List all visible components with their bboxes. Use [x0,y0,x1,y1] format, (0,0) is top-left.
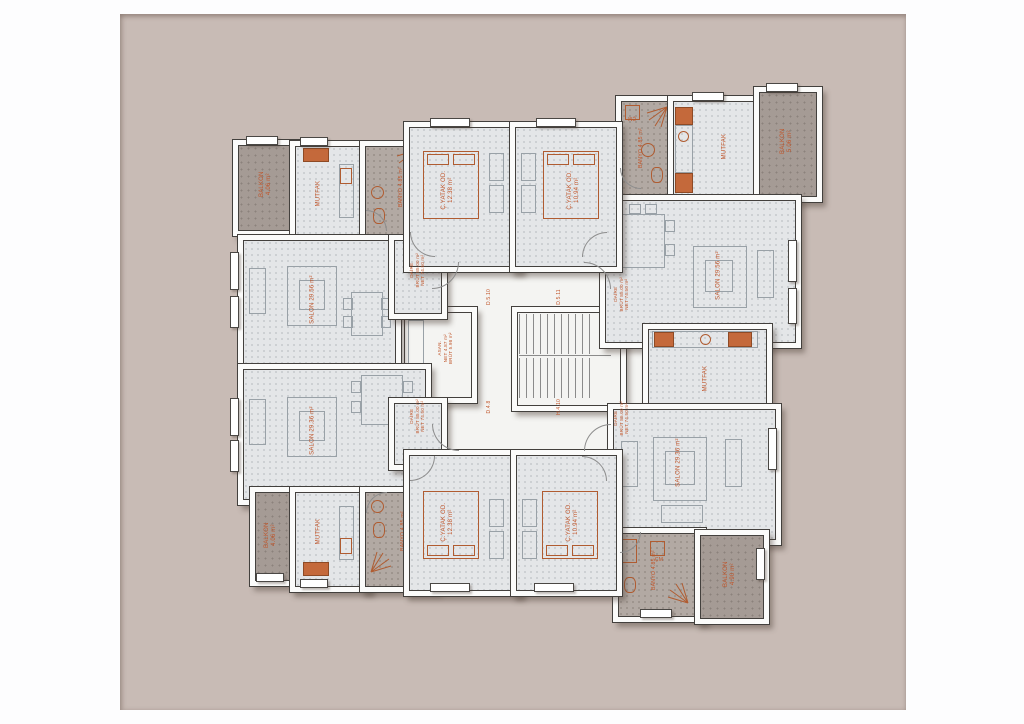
page-background: ASAN. NET 4.87 m² BRÜT 5.98 m² BALKON 4.… [0,0,1024,724]
wardrobe [522,531,537,559]
washing-machine-icon [625,105,640,120]
room-salon-bottom-right: SALON 29.36 m² [608,404,781,545]
kitchen-label: MUTFAK [315,512,322,552]
window [788,240,797,282]
sofa [725,439,742,487]
fridge-icon [675,173,693,193]
toilet-icon [651,167,663,183]
chair [351,401,361,413]
washing-machine-icon [650,541,665,556]
wardrobe [521,153,536,181]
balcony-label: BALKON 5.06 m² [780,121,794,161]
room-kitchen-top-right: MUTFAK [668,96,766,207]
pillow [572,545,594,556]
sofa [757,250,774,298]
coffee-table [299,280,325,310]
pillow [546,545,568,556]
tv-unit [661,505,703,523]
room-salon-top-left: SALON 29.56 m² [238,235,401,375]
sofa [249,268,266,314]
wardrobe [521,185,536,213]
chair [343,316,353,328]
wm-label: ÇM [652,557,666,563]
balcony-label: BALKON 4.90 m² [723,554,737,594]
wardrobe [489,153,504,181]
pillow [573,154,595,165]
window [536,118,576,127]
wardrobe [522,499,537,527]
stair-divider [519,355,611,356]
chair [645,204,657,214]
balcony-label: BALKON 4.06 m² [259,164,273,204]
wardrobe [489,499,504,527]
wardrobe [489,185,504,213]
wardrobe [489,531,504,559]
window [640,609,672,618]
sofa [249,399,266,445]
stove-icon [728,332,752,347]
toilet-icon [624,577,636,593]
window [256,573,284,582]
sink-icon [678,131,689,142]
pillow [427,545,449,556]
coffee-table [299,411,325,441]
window [756,548,765,580]
sink-icon [340,538,352,554]
dining-table [619,214,665,268]
window [430,583,470,592]
chair [629,204,641,214]
window [766,83,798,92]
basin-icon [641,143,655,157]
dining-table [351,292,383,336]
chair [403,381,413,393]
stair-flight-upper [519,314,595,354]
window [430,118,470,127]
window [788,288,797,324]
basin-icon [371,186,384,199]
sink-icon [700,334,711,345]
window [230,398,239,436]
elevator-label: ASAN. NET 4.87 m² BRÜT 5.98 m² [437,325,454,371]
chair [665,220,675,232]
coffee-table [705,260,733,292]
stove-icon [675,107,693,125]
window [692,92,724,101]
window [300,137,328,146]
kitchen-label: MUTFAK [315,174,322,214]
chair [665,244,675,256]
coffee-table [665,451,695,485]
kitchen-label: MUTFAK [721,127,728,167]
room-kitchen-top-left: MUTFAK [290,141,371,246]
kitchen-label: MUTFAK [702,359,709,399]
toilet-icon [373,522,385,538]
room-kitchen-bottom-left: MUTFAK [290,487,371,592]
window [230,296,239,328]
stove-icon [303,148,329,162]
room-balcony-top-right: BALKON 5.06 m² [754,87,822,202]
shower-spray-icon [645,105,669,129]
balcony-label: BALKON 4.06 m² [264,515,278,555]
sofa [621,441,638,487]
window [768,428,777,470]
sink-icon [340,168,352,184]
shower-spray-icon [369,550,393,574]
stove-icon [303,562,329,576]
window [230,440,239,472]
fridge-icon [654,332,674,347]
chair [351,381,361,393]
stair-flight-lower [519,358,595,398]
pillow [427,154,449,165]
window [246,136,278,145]
window [534,583,574,592]
pillow [453,154,475,165]
window [300,579,328,588]
shower-spray-icon [666,581,690,605]
chair [343,298,353,310]
pillow [453,545,475,556]
window [230,252,239,290]
pillow [547,154,569,165]
